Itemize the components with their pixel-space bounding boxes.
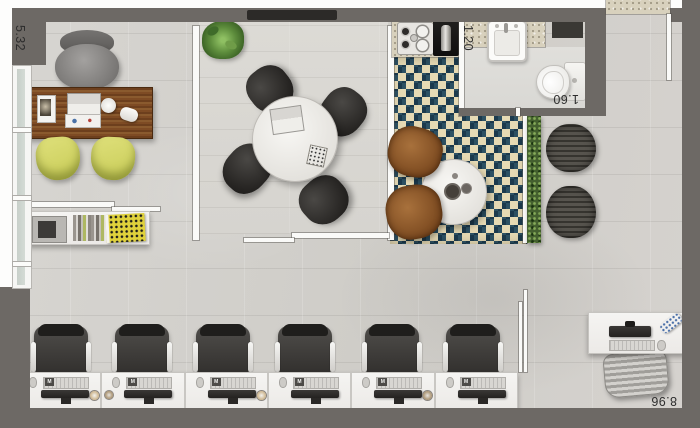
cup-icon bbox=[446, 185, 459, 198]
faucet-handle-icon bbox=[495, 24, 499, 28]
hedge-planter bbox=[527, 116, 541, 243]
notepad bbox=[307, 146, 326, 167]
monitor-icon bbox=[208, 390, 256, 398]
keyboard: M bbox=[126, 377, 172, 389]
window-mullion bbox=[13, 262, 31, 266]
keyboard-logo: M bbox=[295, 378, 304, 386]
meeting-table bbox=[252, 96, 338, 182]
entrance-threshold bbox=[606, 0, 670, 14]
monitor-stand bbox=[311, 398, 321, 404]
saucer-icon bbox=[452, 173, 458, 179]
books bbox=[73, 215, 105, 241]
flush-button-icon bbox=[572, 78, 577, 83]
task-chair bbox=[34, 326, 88, 378]
webcam-icon bbox=[625, 321, 635, 327]
keyboard: M bbox=[376, 377, 422, 389]
keyboard: M bbox=[460, 377, 506, 389]
keyboard-logo: M bbox=[128, 378, 137, 386]
faucet-handle-icon bbox=[514, 24, 518, 28]
wall-reception-stub-a bbox=[519, 302, 522, 372]
wall-bottom bbox=[0, 408, 700, 428]
monitor-stand bbox=[394, 398, 404, 404]
dimension-label-kitchen: 1.20 bbox=[461, 18, 475, 58]
pouf bbox=[546, 186, 596, 238]
plant bbox=[202, 21, 244, 59]
task-chair bbox=[365, 326, 419, 378]
tv-icon bbox=[247, 10, 337, 20]
monitor-stand bbox=[144, 398, 154, 404]
burner-icon bbox=[402, 28, 409, 35]
thermos bbox=[441, 25, 451, 51]
bathroom-door-jamb bbox=[516, 108, 520, 116]
burner-icon bbox=[417, 40, 428, 51]
phone bbox=[658, 312, 684, 335]
burner-icon bbox=[417, 26, 428, 37]
cup-icon bbox=[462, 184, 471, 193]
workstation: M bbox=[436, 373, 517, 409]
bathroom-sink bbox=[487, 20, 527, 62]
entrance-door-leaf bbox=[667, 14, 671, 80]
monitor-icon bbox=[458, 390, 506, 398]
mouse-icon bbox=[657, 340, 666, 351]
window-glass bbox=[17, 69, 25, 285]
dimension-label-bathroom: 1.60 bbox=[548, 92, 584, 106]
desk-trinket bbox=[90, 391, 99, 400]
monitor-icon bbox=[41, 390, 89, 398]
leaf-icon bbox=[206, 25, 220, 38]
keyboard: M bbox=[43, 377, 89, 389]
reception-desk bbox=[588, 312, 686, 354]
workstation: M bbox=[269, 373, 352, 409]
task-chair bbox=[196, 326, 250, 378]
mouse-icon bbox=[196, 377, 204, 388]
desk-trinket bbox=[105, 391, 113, 399]
window bbox=[12, 65, 32, 289]
faucet-icon bbox=[504, 23, 508, 33]
desk-trinket bbox=[257, 391, 266, 400]
task-chair bbox=[278, 326, 332, 378]
printer-screen bbox=[38, 221, 56, 238]
monitor-icon bbox=[291, 390, 339, 398]
floor-plan: M M M M M bbox=[0, 0, 700, 428]
monitor-icon bbox=[374, 390, 422, 398]
keyboard: M bbox=[210, 377, 256, 389]
keyboard-logo: M bbox=[45, 378, 54, 386]
keyboard: M bbox=[293, 377, 339, 389]
workstation: M bbox=[352, 373, 435, 409]
mouse-icon bbox=[112, 377, 120, 388]
workstation: M bbox=[186, 373, 269, 409]
burner-icon bbox=[402, 41, 409, 48]
wall-right bbox=[682, 0, 700, 428]
executive-chair bbox=[55, 44, 119, 90]
workstation: M bbox=[19, 373, 102, 409]
cup-icon bbox=[101, 98, 116, 113]
printer bbox=[32, 216, 67, 243]
mouse-icon bbox=[362, 377, 370, 388]
monitor-icon bbox=[609, 326, 651, 337]
mouse-icon bbox=[446, 377, 454, 388]
keyboard-logo: M bbox=[212, 378, 221, 386]
mouse-icon bbox=[279, 377, 287, 388]
monitor-stand bbox=[61, 398, 71, 404]
wall-office-front bbox=[30, 202, 114, 207]
wall-left-lower bbox=[0, 287, 30, 408]
burner-icon bbox=[411, 35, 417, 41]
wall-bathroom-right bbox=[585, 8, 606, 116]
dimension-label-bottom: 8.96 bbox=[644, 393, 684, 408]
laptop-icon bbox=[269, 105, 304, 135]
pouf bbox=[546, 124, 596, 172]
monitor-stand bbox=[228, 398, 238, 404]
wall-office-meeting bbox=[193, 26, 199, 240]
workstation-desk-row: M M M M M bbox=[18, 372, 518, 410]
task-chair bbox=[115, 326, 169, 378]
workstation: M bbox=[102, 373, 185, 409]
keyboard-logo: M bbox=[378, 378, 387, 386]
window-mullion bbox=[13, 128, 31, 132]
wall-reception-stub-b bbox=[524, 290, 527, 372]
dimension-label-left: 5.32 bbox=[13, 18, 27, 58]
cooktop bbox=[397, 22, 434, 55]
wall-bathroom-bottom bbox=[459, 108, 606, 116]
executive-desk bbox=[25, 87, 153, 139]
sink-basin bbox=[494, 30, 520, 56]
window-mullion bbox=[13, 196, 31, 200]
photo bbox=[40, 99, 51, 116]
coffee-cabinet bbox=[433, 17, 459, 56]
desk-photo-frame bbox=[37, 95, 56, 123]
mouse-icon bbox=[29, 377, 37, 388]
monitor-icon bbox=[124, 390, 172, 398]
keyboard-logo: M bbox=[462, 378, 471, 386]
leaf-icon bbox=[224, 39, 238, 51]
meeting-sliding-door bbox=[244, 238, 294, 242]
sideboard bbox=[25, 211, 150, 245]
desk-phone bbox=[118, 106, 139, 124]
toilet-seat bbox=[542, 71, 564, 94]
task-chair bbox=[446, 326, 500, 378]
desk-trinket bbox=[423, 391, 432, 400]
wall-meeting-front bbox=[292, 233, 389, 238]
yellow-box bbox=[105, 213, 145, 243]
desk-papers bbox=[65, 114, 101, 128]
reception-chair bbox=[602, 349, 670, 398]
monitor-stand bbox=[478, 398, 488, 404]
keyboard bbox=[609, 340, 655, 351]
